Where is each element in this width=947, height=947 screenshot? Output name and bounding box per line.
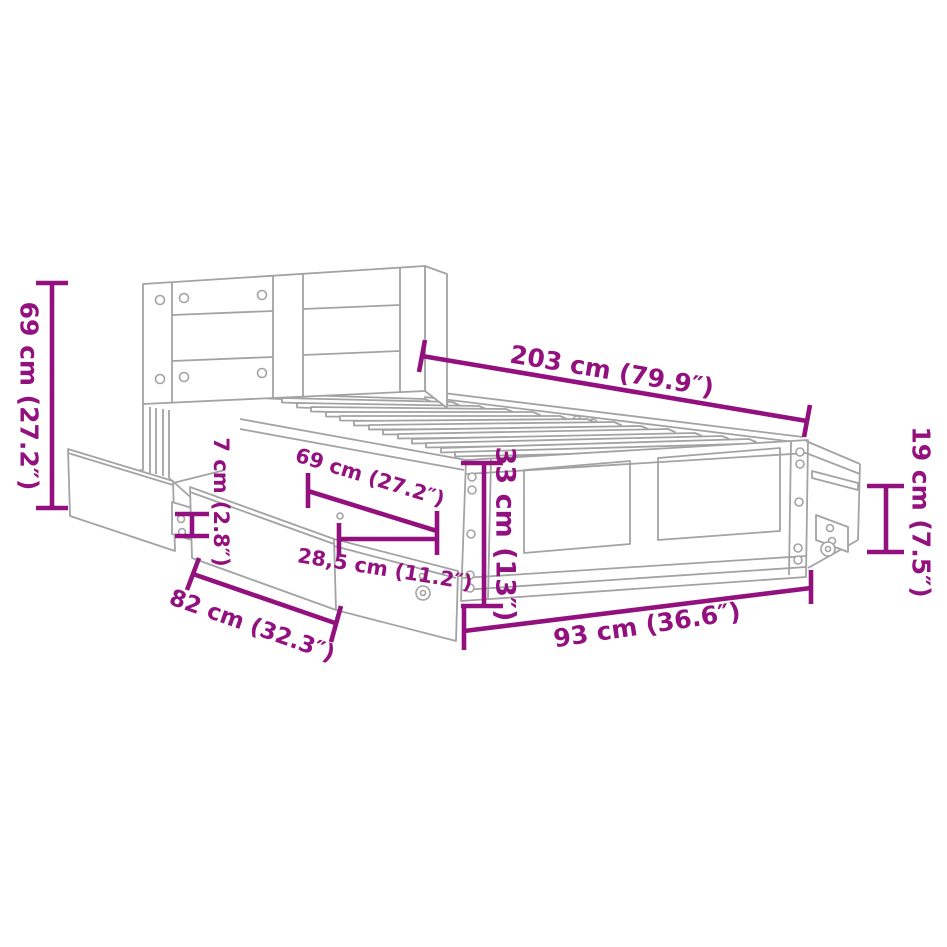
dimension-caster-height bbox=[867, 486, 904, 552]
label-frame-height: 33 cm (13″) bbox=[490, 447, 521, 622]
label-headboard-gap: 7 cm (2.8″) bbox=[209, 437, 233, 566]
label-caster-height: 19 cm (7.5″) bbox=[907, 426, 936, 597]
diagram-canvas: 69 cm (27.2″) 203 cm (79.9″) 7 cm (2.8″)… bbox=[0, 0, 947, 947]
headboard bbox=[143, 266, 447, 408]
label-frame-length: 203 cm (79.9″) bbox=[508, 340, 716, 403]
side-glide-and-caster bbox=[806, 441, 860, 568]
label-frame-width: 93 cm (36.6″) bbox=[552, 597, 743, 654]
bed-frame-dimension-drawing: 69 cm (27.2″) 203 cm (79.9″) 7 cm (2.8″)… bbox=[0, 0, 947, 947]
label-headboard-height: 69 cm (27.2″) bbox=[15, 302, 44, 491]
